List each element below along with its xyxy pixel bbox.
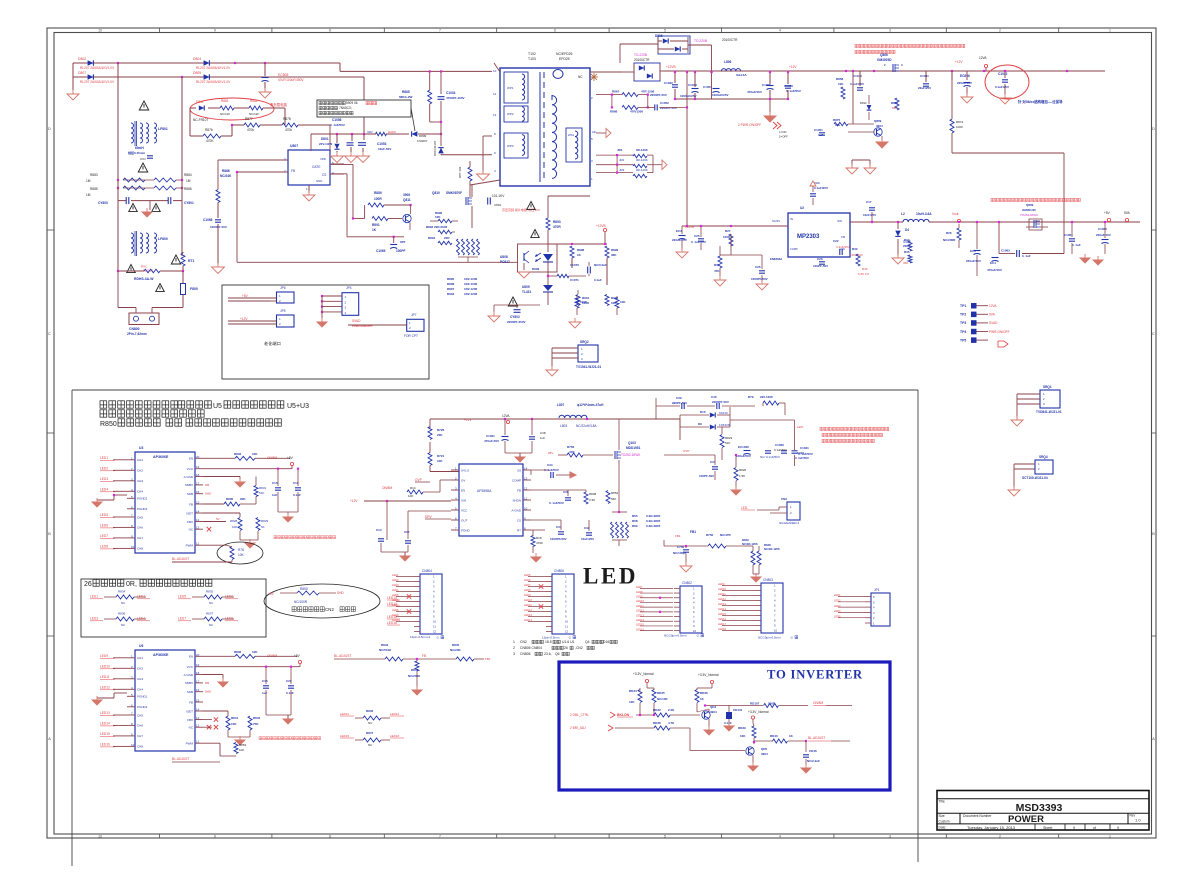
- svg-text:1R2-1206: 1R2-1206: [464, 277, 478, 281]
- svg-text:Q4: Q4: [585, 640, 590, 644]
- svg-text:C1041: C1041: [920, 74, 929, 78]
- svg-text:MP2303: MP2303: [797, 234, 820, 240]
- svg-text:13: 13: [493, 113, 497, 117]
- svg-text:Q809: Q809: [1026, 203, 1034, 207]
- svg-text:FBX: FBX: [187, 520, 193, 524]
- svg-text:2200PF-50V: 2200PF-50V: [660, 106, 677, 110]
- svg-text:2: 2: [999, 29, 1001, 33]
- svg-text:D812: D812: [860, 101, 867, 105]
- svg-text:12pin-0.5mm-2: 12pin-0.5mm-2: [410, 635, 431, 639]
- svg-text:C1069: C1069: [376, 249, 386, 253]
- svg-text:0. 1uF/50V: 0. 1uF/50V: [795, 456, 809, 460]
- svg-text:3.3K: 3.3K: [589, 498, 595, 502]
- svg-text:0. 1uF/50V: 0. 1uF/50V: [549, 501, 564, 505]
- svg-text:C34: C34: [547, 463, 553, 467]
- svg-text:10: 10: [98, 29, 102, 33]
- svg-text:11: 11: [565, 625, 568, 629]
- svg-text:LED8: LED8: [225, 617, 233, 621]
- svg-text:CH1: CH1: [137, 458, 143, 462]
- svg-text:FB: FB: [422, 654, 426, 658]
- svg-text:20K: 20K: [240, 497, 246, 501]
- svg-text:C: C: [1152, 331, 1155, 336]
- svg-text:12VA: 12VA: [502, 414, 510, 418]
- svg-text:220uF/16V: 220uF/16V: [966, 259, 981, 263]
- svg-text:FBX: FBX: [187, 718, 193, 722]
- svg-text:R823: R823: [725, 436, 733, 440]
- svg-text:BKLON: BKLON: [617, 713, 630, 717]
- svg-text:2.2K: 2.2K: [668, 708, 675, 712]
- svg-text:5V: 5V: [216, 517, 220, 521]
- svg-text:CN803: CN803: [763, 578, 773, 582]
- svg-text:R756: R756: [567, 445, 575, 449]
- svg-text:CS: CS: [322, 173, 326, 177]
- svg-text:假负载电路: 假负载电路: [270, 102, 288, 107]
- svg-text:FB: FB: [189, 700, 193, 704]
- svg-text:NC/EFD25: NC/EFD25: [556, 52, 573, 56]
- svg-text:RD36: RD36: [700, 691, 708, 695]
- svg-text:101-1KV: 101-1KV: [492, 194, 505, 198]
- svg-text:Size: Size: [939, 814, 945, 818]
- svg-text:RL207 2A/60A/1KV1.0V: RL207 2A/60A/1KV1.0V: [80, 66, 115, 70]
- svg-text:LED13: LED13: [636, 613, 644, 617]
- svg-text:SHD: SHD: [337, 591, 344, 595]
- svg-text:POWER: POWER: [1008, 814, 1044, 825]
- svg-text:26: 26: [564, 646, 568, 650]
- svg-text:D801: D801: [321, 137, 329, 141]
- svg-text:7: 7: [439, 835, 441, 839]
- svg-text:R850: R850: [300, 587, 308, 591]
- svg-text:JR1: JR1: [617, 148, 623, 152]
- svg-text:NC/SS: NC/SS: [772, 219, 780, 223]
- svg-text:LED11: LED11: [524, 603, 532, 607]
- svg-text:C27: C27: [404, 530, 410, 534]
- svg-text:C1052: C1052: [660, 101, 669, 105]
- svg-text:22R: 22R: [444, 236, 450, 240]
- svg-text:0. 1uF: 0. 1uF: [1022, 254, 1031, 258]
- svg-text:R858: R858: [836, 77, 844, 81]
- svg-text:1S63V8: 1S63V8: [719, 423, 730, 427]
- svg-text:Title: Title: [939, 800, 945, 804]
- svg-text:LED2: LED2: [100, 467, 108, 471]
- svg-text:Document Number: Document Number: [963, 814, 992, 818]
- svg-text:AP3606E: AP3606E: [153, 455, 169, 459]
- svg-text:JP4: JP4: [346, 286, 352, 290]
- svg-text:SS: SS: [517, 469, 521, 473]
- svg-text:BL-ADJUST: BL-ADJUST: [172, 557, 189, 561]
- svg-text:LED3: LED3: [392, 583, 399, 587]
- svg-text:R894: R894: [428, 236, 436, 240]
- svg-text:CH3: CH3: [137, 677, 143, 681]
- svg-text:CN806: CN806: [520, 652, 531, 656]
- svg-text:RD34: RD34: [629, 689, 637, 693]
- svg-text:R874: R874: [956, 120, 964, 124]
- svg-text:18.5: 18.5: [545, 640, 552, 644]
- svg-text:R850: R850: [100, 421, 117, 428]
- svg-text:TP3: TP3: [960, 321, 966, 325]
- svg-text:LED2: LED2: [137, 595, 145, 599]
- svg-text:LED: LED: [583, 564, 638, 589]
- svg-text:EC3: EC3: [676, 229, 682, 233]
- svg-text:SVAD: SVAD: [352, 319, 361, 323]
- svg-text:990PF-50V: 990PF-50V: [672, 401, 687, 405]
- svg-text:L806: L806: [724, 60, 731, 64]
- svg-text:R886: R886: [184, 187, 192, 191]
- svg-text:10K: 10K: [252, 650, 258, 654]
- svg-text:+5V: +5V: [242, 294, 249, 298]
- svg-text:OVP: OVP: [683, 449, 689, 453]
- svg-text:LED8: LED8: [392, 608, 399, 612]
- svg-text:0.1uF: 0.1uF: [293, 493, 301, 497]
- svg-text:PGND2: PGND2: [137, 507, 148, 511]
- svg-text:+12V: +12V: [955, 60, 963, 64]
- svg-text:LED15: LED15: [718, 612, 726, 616]
- svg-text:R852: R852: [611, 491, 619, 495]
- svg-text:LED16: LED16: [390, 734, 400, 738]
- svg-text:LED15: LED15: [340, 734, 350, 738]
- svg-text:100PF-50V: 100PF-50V: [699, 474, 714, 478]
- svg-text:LED13: LED13: [718, 602, 726, 606]
- svg-text:3904: 3904: [876, 124, 883, 128]
- svg-text:12: 12: [565, 630, 569, 634]
- svg-text:47K: 47K: [714, 269, 720, 273]
- svg-text:NC/510K: NC/510K: [379, 648, 392, 652]
- svg-text:12VA: 12VA: [979, 56, 987, 60]
- svg-text:CH3: CH3: [137, 479, 143, 483]
- svg-text:COMP: COMP: [512, 479, 521, 483]
- svg-text:of: of: [1093, 826, 1096, 830]
- svg-text:32R: 32R: [367, 130, 373, 134]
- svg-text:WP2: WP2: [507, 112, 514, 116]
- svg-text:VCC: VCC: [461, 509, 468, 513]
- svg-text:LED3: LED3: [90, 617, 98, 621]
- svg-text:U807: U807: [290, 144, 298, 148]
- svg-text:CN2: CN2: [781, 497, 787, 501]
- svg-text:WP1: WP1: [507, 86, 514, 90]
- svg-text:0R-1206: 0R-1206: [636, 168, 648, 172]
- svg-text:RT1: RT1: [188, 259, 195, 263]
- svg-text:R876: R876: [205, 128, 213, 132]
- svg-text:0.3Ω-0805: 0.3Ω-0805: [646, 524, 661, 528]
- svg-text:LED12: LED12: [100, 686, 110, 690]
- svg-text:28V: 28V: [548, 451, 553, 455]
- svg-text:ON/8M: ON/8M: [813, 701, 823, 705]
- svg-text:C1053: C1053: [377, 142, 387, 146]
- svg-text:Q806: Q806: [880, 53, 888, 57]
- svg-text:LED5: LED5: [392, 593, 399, 597]
- svg-text:RD40: RD40: [770, 734, 778, 738]
- svg-text:0.1uF: 0.1uF: [594, 278, 602, 282]
- svg-text:R846: R846: [366, 709, 374, 713]
- svg-text:Custom: Custom: [939, 820, 950, 824]
- svg-text:1uF: 1uF: [272, 493, 278, 497]
- svg-text:D809: D809: [419, 134, 427, 138]
- svg-text:LED10: LED10: [392, 618, 400, 622]
- svg-text:R69: R69: [632, 524, 638, 528]
- svg-text:100R: 100R: [374, 197, 382, 201]
- svg-text:FB1: FB1: [675, 534, 681, 538]
- svg-text:11: 11: [433, 625, 436, 629]
- svg-text:10K: 10K: [838, 82, 844, 86]
- svg-text:R898: R898: [447, 282, 455, 286]
- svg-text:R35: R35: [904, 250, 910, 254]
- svg-text:SDB: SDB: [187, 492, 193, 496]
- svg-text:5: 5: [664, 835, 666, 839]
- svg-text:AP3606E: AP3606E: [153, 653, 169, 657]
- svg-text:470K: 470K: [536, 541, 543, 545]
- svg-text:NC/47R: NC/47R: [720, 533, 732, 537]
- svg-text:0. 1uF/50V: 0. 1uF/50V: [330, 123, 345, 127]
- svg-text:IN: IN: [790, 217, 793, 221]
- svg-text:NC/22uH/3.8A: NC/22uH/3.8A: [576, 424, 597, 428]
- svg-text:CH7: CH7: [137, 536, 143, 540]
- svg-text:FB1: FB1: [485, 657, 491, 661]
- svg-text:1000PF/20V: 1000PF/20V: [550, 537, 567, 541]
- svg-text:5VA: 5VA: [989, 313, 996, 317]
- svg-text:U5+U3: U5+U3: [287, 403, 309, 410]
- svg-text:R836: R836: [118, 612, 126, 616]
- svg-text:EC4: EC4: [990, 261, 996, 265]
- svg-text:0.1uF/50V: 0.1uF/50V: [850, 82, 864, 86]
- svg-text:0.1uF: 0.1uF: [286, 691, 294, 695]
- svg-text:CN806: CN806: [554, 569, 564, 573]
- svg-text:CY801: CY801: [184, 201, 194, 205]
- svg-text:Q809: Q809: [874, 119, 882, 123]
- svg-text:LED17: LED17: [718, 622, 726, 626]
- svg-text:LED13: LED13: [524, 613, 532, 617]
- svg-text:CX1: CX1: [140, 157, 146, 161]
- svg-text:9: 9: [1073, 826, 1075, 830]
- svg-text:C1063: C1063: [1001, 249, 1010, 253]
- svg-text:CS: CS: [517, 519, 521, 523]
- svg-text:TP2: TP2: [960, 313, 966, 317]
- svg-text:Q6: Q6: [555, 652, 560, 656]
- svg-text:3906: 3906: [403, 193, 410, 197]
- svg-text:10K: 10K: [437, 459, 443, 463]
- svg-text:DRV: DRV: [425, 515, 433, 519]
- svg-text:WS1: WS1: [568, 133, 575, 137]
- svg-text:100PF: 100PF: [396, 249, 405, 253]
- svg-text:LED12: LED12: [390, 712, 400, 716]
- svg-text:LED16: LED16: [718, 617, 726, 621]
- svg-text:R726: R726: [437, 428, 445, 432]
- svg-text:LED4: LED4: [834, 609, 841, 613]
- svg-text:5.6K 1%: 5.6K 1%: [858, 272, 870, 276]
- svg-text:TV1941-WJ21-01: TV1941-WJ21-01: [576, 365, 601, 369]
- svg-text:0.1uF/25V: 0.1uF/25V: [814, 186, 828, 190]
- svg-text:C1070: C1070: [570, 263, 579, 267]
- svg-text:3.3nF/25V: 3.3nF/25V: [836, 245, 850, 249]
- svg-text:3uH-5A: 3uH-5A: [736, 73, 747, 77]
- svg-text:D10: D10: [700, 410, 706, 414]
- svg-text:D807: D807: [78, 71, 86, 75]
- svg-text:TP1: TP1: [960, 304, 966, 308]
- svg-text:+5V: +5V: [1104, 211, 1111, 215]
- svg-text:4: 4: [779, 835, 781, 839]
- svg-text:75K: 75K: [253, 722, 259, 726]
- svg-text:C40: C40: [711, 395, 717, 399]
- svg-text:C22: C22: [833, 239, 839, 243]
- svg-text:CH6: CH6: [137, 526, 143, 530]
- svg-text:NC: NC: [578, 75, 583, 79]
- svg-text:NC/24K: NC/24K: [220, 174, 232, 178]
- svg-text:L=ON: L=ON: [779, 130, 786, 134]
- svg-text:R882: R882: [250, 99, 258, 103]
- svg-text:CN2: CN2: [325, 607, 334, 612]
- svg-text:LF801: LF801: [158, 127, 168, 131]
- svg-text:R843: R843: [381, 643, 389, 647]
- svg-text:SDBX: SDBX: [185, 483, 193, 487]
- svg-text:+3.3V_Normal: +3.3V_Normal: [698, 673, 719, 677]
- svg-text:C1021: C1021: [486, 434, 495, 438]
- svg-text:10K: 10K: [408, 494, 413, 498]
- svg-text:CH8: CH8: [137, 745, 143, 749]
- svg-text:GND: GND: [316, 179, 322, 183]
- svg-text:BL-ADJUST: BL-ADJUST: [808, 736, 825, 740]
- svg-text:D: D: [48, 126, 51, 131]
- svg-text:LED4: LED4: [137, 617, 145, 621]
- svg-text:LED6: LED6: [225, 595, 233, 599]
- svg-text:470R: 470R: [553, 225, 561, 229]
- svg-text:10K: 10K: [629, 700, 635, 704]
- svg-text:U1.6 U1: U1.6 U1: [562, 640, 575, 644]
- svg-text:470uF/16V: 470uF/16V: [987, 268, 1002, 272]
- svg-text:CH4: CH4: [137, 688, 143, 692]
- svg-text:2200PF-50V: 2200PF-50V: [650, 93, 667, 97]
- svg-text:LED7: LED7: [178, 617, 186, 621]
- svg-text:SHDN: SHDN: [512, 499, 521, 503]
- svg-text:AD: AD: [592, 130, 596, 134]
- svg-text:U3: U3: [139, 446, 143, 450]
- svg-text:R36: R36: [862, 267, 868, 271]
- svg-text:LED1: LED1: [90, 595, 98, 599]
- svg-text:NC/20K: NC/20K: [450, 648, 462, 652]
- svg-text:47R-1208: 47R-1208: [641, 90, 655, 94]
- svg-text:R877: R877: [245, 117, 253, 121]
- svg-text:LED9: LED9: [636, 594, 643, 598]
- svg-text:SDB: SDB: [187, 690, 193, 694]
- svg-text:1N4007: 1N4007: [417, 139, 428, 143]
- svg-text:470K: 470K: [206, 139, 214, 143]
- svg-text:1: 1: [1109, 29, 1111, 33]
- svg-text:A: A: [1152, 736, 1155, 741]
- svg-text:CH6: CH6: [137, 724, 143, 728]
- svg-text:LF800: LF800: [158, 237, 168, 241]
- svg-text:LED8: LED8: [636, 590, 643, 594]
- svg-text:Date:: Date:: [939, 826, 947, 830]
- svg-text:L2: L2: [901, 212, 905, 216]
- svg-text:TO-220B: TO-220B: [694, 39, 707, 43]
- svg-text:R853: R853: [239, 743, 247, 747]
- svg-text:CN805 CN804: CN805 CN804: [520, 646, 542, 650]
- svg-text:0. 1uF: 0. 1uF: [1072, 243, 1081, 247]
- svg-text:RL207 2A/60A/1KV1.0V: RL207 2A/60A/1KV1.0V: [196, 66, 231, 70]
- svg-text:10: 10: [693, 629, 697, 633]
- svg-text:GM3014D: GM3014D: [1022, 208, 1037, 212]
- svg-text:VIN: VIN: [461, 499, 466, 503]
- svg-text:R831: R831: [259, 486, 267, 490]
- svg-text:TVD841-WJ21-01: TVD841-WJ21-01: [1036, 410, 1062, 414]
- svg-text:R895: R895: [447, 277, 455, 281]
- svg-text:φ12*6*4mm-47uH: φ12*6*4mm-47uH: [577, 403, 604, 407]
- svg-text:10: 10: [433, 620, 437, 624]
- svg-text:B: B: [1152, 531, 1155, 536]
- svg-text:T102: T102: [528, 52, 536, 56]
- svg-text:1R2-1206: 1R2-1206: [464, 282, 478, 286]
- svg-text:10: 10: [565, 620, 569, 624]
- svg-text:RL207 2A/60A/1KV1.0V: RL207 2A/60A/1KV1.0V: [196, 80, 231, 84]
- svg-text:470uF-50V: 470uF-50V: [484, 439, 499, 443]
- svg-text:0R,: 0R,: [126, 581, 137, 588]
- svg-text:R885: R885: [90, 187, 98, 191]
- svg-text:10K: 10K: [740, 734, 746, 738]
- svg-text:470k: 470k: [247, 128, 254, 132]
- svg-text:2200PF-50V: 2200PF-50V: [712, 400, 729, 404]
- svg-text:10K: 10K: [238, 553, 245, 557]
- svg-text:PGND: PGND: [461, 529, 471, 533]
- svg-text:0PF: 0PF: [400, 240, 406, 244]
- svg-text:R721: R721: [437, 454, 445, 458]
- svg-text:C1026: C1026: [775, 443, 784, 447]
- svg-text:U6: U6: [139, 644, 143, 648]
- svg-text:0.1uF: 0.1uF: [724, 721, 732, 725]
- svg-text:R750: R750: [706, 533, 714, 537]
- svg-text:NC/100R: NC/100R: [294, 600, 308, 604]
- svg-text:PGND1: PGND1: [137, 695, 148, 699]
- svg-text:1000PF/50V: 1000PF/50V: [751, 277, 768, 281]
- svg-text:EN: EN: [189, 655, 193, 659]
- svg-text:R847: R847: [366, 731, 374, 735]
- svg-text:NC/1W: NC/1W: [220, 112, 230, 116]
- svg-text:EC1026: EC1026: [738, 445, 749, 449]
- svg-text:CY800: CY800: [98, 201, 108, 205]
- svg-text:C39: C39: [676, 396, 682, 400]
- svg-text:F800: F800: [190, 287, 198, 291]
- svg-text:R828: R828: [230, 519, 238, 523]
- svg-text:NC/1R-1206: NC/1R-1206: [742, 542, 758, 546]
- svg-text:R884: R884: [184, 173, 192, 177]
- svg-text:LED7: LED7: [524, 583, 531, 587]
- svg-text:C1039: C1039: [688, 83, 697, 87]
- svg-text:2200PF-250V: 2200PF-250V: [507, 320, 526, 324]
- svg-text:36K: 36K: [611, 253, 617, 257]
- svg-text:C1034: C1034: [446, 91, 456, 95]
- svg-text:7: 7: [439, 29, 441, 33]
- svg-text:+5V: +5V: [268, 592, 275, 596]
- svg-text:C1066: C1066: [203, 218, 213, 222]
- svg-text:C1032: C1032: [664, 81, 673, 85]
- svg-text:EFD25: EFD25: [559, 57, 570, 61]
- svg-text:3: 3: [889, 29, 891, 33]
- svg-text:D802: D802: [78, 57, 86, 61]
- svg-text:TO252-DPAK: TO252-DPAK: [1020, 213, 1038, 217]
- svg-text:RD39: RD39: [738, 726, 746, 730]
- svg-text:+12V: +12V: [240, 317, 248, 321]
- svg-text:U5: U5: [213, 403, 222, 410]
- svg-text:Vout: Vout: [952, 212, 958, 216]
- svg-text:NC/ 0.1uF/50V: NC/ 0.1uF/50V: [760, 455, 780, 459]
- svg-text:C1031: C1031: [800, 446, 809, 450]
- svg-text:NC/1W: NC/1W: [249, 112, 259, 116]
- svg-text:R892 22R-0603: R892 22R-0603: [426, 225, 448, 229]
- svg-text:3: 3: [513, 652, 515, 656]
- svg-text:LED7: LED7: [100, 534, 108, 538]
- svg-text:PWR-ON/OFF: PWR-ON/OFF: [989, 330, 1010, 334]
- svg-text:1: 1: [1109, 835, 1111, 839]
- svg-text:NC-FR107: NC-FR107: [193, 118, 208, 122]
- svg-text:220-1206: 220-1206: [760, 395, 773, 399]
- svg-text:TL431: TL431: [522, 290, 531, 294]
- svg-text:51K: 51K: [259, 491, 264, 495]
